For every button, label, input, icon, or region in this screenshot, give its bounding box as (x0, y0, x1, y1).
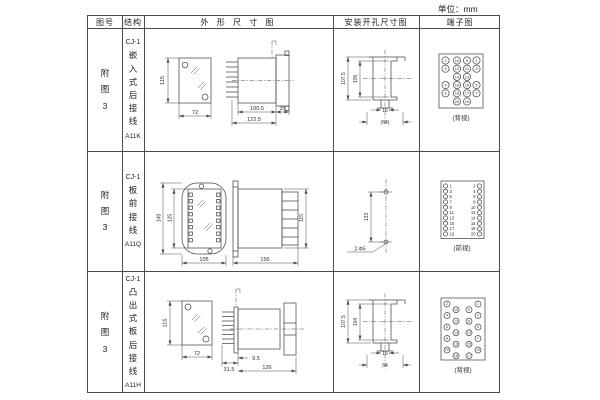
side-view: 156 115 (233, 181, 309, 266)
terminal-pin: 14 (453, 73, 460, 80)
svg-text:6: 6 (444, 83, 447, 88)
svg-text:17: 17 (465, 91, 470, 96)
terminal-row: 12 (443, 184, 481, 189)
dim-label-side-h: 115 (299, 214, 305, 222)
mounting-drawing-a11h: 107.5 104 16 64 (333, 271, 419, 394)
svg-text:17: 17 (450, 226, 455, 231)
glass-shine-marks (191, 67, 207, 90)
terminal-pin: 19 (463, 98, 470, 105)
terminal-pin: 4 (444, 313, 450, 319)
terminal-pins-comb (222, 312, 234, 344)
svg-text:5: 5 (475, 83, 478, 88)
svg-text:18: 18 (471, 226, 476, 231)
dim-label-height: 115 (163, 319, 169, 328)
terminal-pin: 3 (473, 65, 480, 72)
model-label: A11Q (125, 241, 141, 248)
dim-label-width: 64 (382, 363, 388, 369)
svg-text:4: 4 (444, 66, 447, 71)
outline-drawing-a11k: 115 72 100.5 122.5 (144, 28, 333, 151)
svg-text:18: 18 (454, 354, 458, 358)
terminal-pin: 11 (466, 318, 472, 324)
unit-label: 单位：mm (438, 3, 478, 15)
terminal-pin: 19 (475, 347, 481, 353)
svg-text:12: 12 (455, 66, 460, 71)
dim-label-inner-h: 125 (168, 214, 174, 223)
terminal-pin: 11 (463, 65, 470, 72)
side-view: 9.5 31.5 126 (222, 289, 304, 374)
terminal-pin: 8 (444, 336, 450, 342)
header-outline: 外 形 尺 寸 图 (144, 16, 333, 28)
dim-label-width: 72 (192, 110, 198, 116)
terminal-pins-comb (226, 62, 238, 97)
terminal-pin: 1 (473, 57, 480, 64)
svg-text:2: 2 (444, 58, 447, 63)
structure-label: 嵌入式后接线 (129, 49, 138, 128)
glass-shine-marks (197, 200, 213, 231)
svg-text:7: 7 (477, 337, 479, 341)
svg-text:15: 15 (467, 342, 471, 346)
terminal-row: 1920 (443, 232, 481, 237)
svg-text:3: 3 (477, 314, 479, 318)
mounting-drawing-a11q: 133 2-Φ5 (333, 151, 419, 271)
terminal-pin: 5 (475, 324, 481, 330)
svg-text:17: 17 (467, 354, 471, 358)
header-terminal: 端子图 (419, 16, 501, 28)
terminal-pin: 2 (442, 57, 449, 64)
panel-cutout-profile (363, 50, 411, 126)
terminal-pin: 17 (463, 90, 470, 97)
svg-text:12: 12 (471, 210, 476, 215)
svg-text:1: 1 (475, 58, 478, 63)
side-view: 100.5 122.5 35 (226, 41, 294, 126)
terminal-pin: 6 (444, 324, 450, 330)
front-view: 149 125 105 (157, 183, 227, 266)
terminal-pin: 3 (475, 313, 481, 319)
figure-no: 附图3 (101, 187, 110, 235)
svg-text:11: 11 (450, 210, 455, 215)
panel-cutout-profile (363, 293, 413, 369)
terminal-pin: 10 (453, 57, 460, 64)
dim-label-width: 105 (199, 257, 208, 263)
figure-cell-row1: 附图3 (88, 28, 122, 151)
svg-text:8: 8 (444, 91, 447, 96)
terminal-row: 910 (443, 205, 481, 210)
figure-cell-row2: 附图3 (88, 151, 122, 271)
series-label: CJ-1 (126, 174, 141, 181)
dim-label-notch: 16 (382, 108, 388, 114)
view-label: (背视) (452, 113, 469, 122)
svg-text:7: 7 (475, 91, 478, 96)
svg-text:13: 13 (467, 331, 471, 335)
screw (208, 249, 212, 253)
dim-label-depth-b: 9.5 (252, 356, 260, 362)
dim-label-notch: 16 (382, 351, 388, 357)
terminal-pin: 12 (453, 65, 460, 72)
svg-text:4: 4 (446, 314, 448, 318)
terminal-diagram-a11h: 2 4 6 8 20 10 12 14 16 18 9 11 13 15 17 … (419, 271, 501, 394)
dim-label-outer-h: 149 (157, 214, 163, 223)
svg-text:2: 2 (473, 184, 476, 189)
header-structure: 结构 (122, 16, 144, 28)
dim-label-inner-h: 104 (353, 318, 359, 327)
dim-label-width: 72 (194, 351, 200, 357)
dim-label-outer-h: 107.5 (341, 315, 347, 328)
series-label: CJ-1 (126, 39, 141, 46)
model-label: A11K (125, 133, 140, 140)
hole-spec-label: 2-Φ5 (354, 247, 365, 253)
terminal-pin: 6 (442, 82, 449, 89)
svg-text:13: 13 (465, 74, 470, 79)
svg-text:10: 10 (455, 58, 460, 63)
svg-text:5: 5 (450, 194, 453, 199)
spec-table: 图号 结构 外 形 尺 寸 图 安装开孔尺寸图 端子图 附图3 附图3 附图3 … (87, 15, 500, 393)
svg-text:10: 10 (454, 308, 458, 312)
front-view: 115 72 (163, 301, 213, 360)
terminal-pin: 15 (466, 341, 472, 347)
figure-no: 附图3 (101, 65, 110, 113)
terminal-row: 1314 (443, 216, 481, 221)
dim-label-height: 115 (160, 76, 166, 85)
svg-text:14: 14 (455, 74, 460, 79)
structure-label: 板前接线 (129, 184, 138, 237)
terminal-pin: 2 (444, 301, 450, 307)
structure-cell-a11k: CJ-1 嵌入式后接线 A11K (122, 28, 144, 151)
outline-drawing-a11q: 149 125 105 156 115 (144, 151, 333, 271)
structure-cell-a11q: CJ-1 板前接线 A11Q (122, 151, 144, 271)
svg-text:19: 19 (450, 232, 455, 237)
svg-text:11: 11 (465, 66, 470, 71)
terminal-pin: 18 (453, 90, 460, 97)
svg-text:19: 19 (476, 348, 480, 352)
svg-text:6: 6 (446, 325, 448, 329)
dim-label-outer-h: 107.5 (341, 72, 347, 85)
svg-text:5: 5 (477, 325, 479, 329)
glass-shine-marks (192, 314, 207, 335)
svg-text:18: 18 (455, 91, 460, 96)
terminal-row: 78 (443, 200, 481, 205)
svg-text:20: 20 (471, 232, 476, 237)
svg-text:7: 7 (450, 200, 453, 205)
dim-label-depth-c: 126 (262, 365, 271, 371)
terminal-diagram-a11q: 12 34 56 78 910 1112 1314 1516 1718 1920… (419, 151, 501, 271)
svg-text:12: 12 (454, 319, 458, 323)
terminal-pin: 9 (466, 307, 472, 313)
outline-drawing-a11h: 115 72 9.5 31.5 (144, 271, 333, 394)
terminal-row: 1112 (443, 210, 481, 215)
dim-label-depth-a: 100.5 (250, 106, 264, 112)
svg-text:8: 8 (473, 200, 476, 205)
terminal-pin: 16 (453, 82, 460, 89)
terminal-pin: 9 (463, 57, 470, 64)
svg-text:9: 9 (450, 205, 453, 210)
svg-text:3: 3 (450, 189, 453, 194)
view-label: (背视) (454, 365, 471, 374)
terminal-pin: 13 (466, 330, 472, 336)
svg-text:4: 4 (473, 189, 476, 194)
terminal-pin: 17 (466, 353, 472, 359)
terminal-row: 56 (443, 194, 481, 199)
svg-text:6: 6 (473, 194, 476, 199)
dim-label-depth: 156 (260, 257, 269, 263)
svg-text:9: 9 (466, 58, 469, 63)
svg-text:14: 14 (471, 216, 476, 221)
dim-label-inner-h: 105 (353, 75, 359, 84)
terminal-pin: 16 (453, 341, 459, 347)
terminal-pin: 4 (442, 65, 449, 72)
terminal-pin: 20 (453, 98, 460, 105)
dim-label-hole-span: 133 (364, 213, 370, 222)
svg-text:1: 1 (450, 184, 453, 189)
terminal-pin: 18 (453, 353, 459, 359)
svg-text:20: 20 (445, 348, 449, 352)
terminal-strip-right (217, 193, 220, 242)
svg-text:20: 20 (455, 99, 460, 104)
svg-text:3: 3 (475, 66, 478, 71)
terminal-row: 1516 (443, 221, 481, 226)
svg-text:11: 11 (467, 319, 471, 323)
terminal-row: 1718 (443, 226, 481, 231)
mounting-drawing-a11k: 107.5 105 16 (64) (333, 28, 419, 151)
dim-label-depth-a: 31.5 (224, 367, 235, 373)
svg-text:9: 9 (468, 308, 470, 312)
svg-text:16: 16 (455, 83, 460, 88)
terminal-pin: 13 (463, 73, 470, 80)
screw (199, 184, 203, 188)
terminal-pin: 20 (444, 347, 450, 353)
terminal-strip-left (189, 193, 192, 242)
terminal-pin: 7 (475, 336, 481, 342)
terminal-row: 34 (443, 189, 481, 194)
model-label: A11H (125, 382, 141, 389)
svg-text:14: 14 (454, 331, 458, 335)
svg-text:16: 16 (454, 342, 458, 346)
terminal-pin: 10 (453, 307, 459, 313)
structure-cell-a11h: CJ-1 凸出式板后接线 A11H (122, 271, 144, 394)
terminal-diagram-a11k: 2 10 9 1 4 12 11 3 14 13 6 16 15 5 8 18 … (419, 28, 501, 151)
svg-text:16: 16 (471, 221, 476, 226)
terminal-pin: 1 (475, 301, 481, 307)
series-label: CJ-1 (126, 276, 141, 283)
svg-text:2: 2 (446, 302, 448, 306)
terminal-pin: 15 (463, 82, 470, 89)
terminal-pin: 7 (473, 90, 480, 97)
dim-label-flange: 35 (279, 106, 285, 112)
svg-text:15: 15 (450, 221, 455, 226)
view-label: (前视) (453, 243, 470, 252)
svg-text:13: 13 (450, 216, 455, 221)
svg-text:15: 15 (465, 83, 470, 88)
structure-label: 凸出式板后接线 (129, 286, 138, 378)
terminal-pin: 12 (453, 318, 459, 324)
front-view: 115 72 (160, 58, 211, 119)
figure-cell-row3: 附图3 (88, 271, 122, 394)
terminal-pin: 14 (453, 330, 459, 336)
terminal-pin: 8 (442, 90, 449, 97)
header-mounting: 安装开孔尺寸图 (333, 16, 419, 28)
rear-terminal-slots (282, 201, 298, 237)
svg-text:19: 19 (465, 99, 470, 104)
figure-no: 附图3 (101, 308, 110, 356)
header-figure: 图号 (88, 16, 122, 28)
terminal-pin: 5 (473, 82, 480, 89)
svg-text:1: 1 (477, 302, 479, 306)
dim-label-depth-b: 122.5 (247, 117, 261, 123)
svg-text:10: 10 (471, 205, 476, 210)
dim-label-width: (64) (381, 120, 390, 126)
svg-text:8: 8 (446, 337, 448, 341)
